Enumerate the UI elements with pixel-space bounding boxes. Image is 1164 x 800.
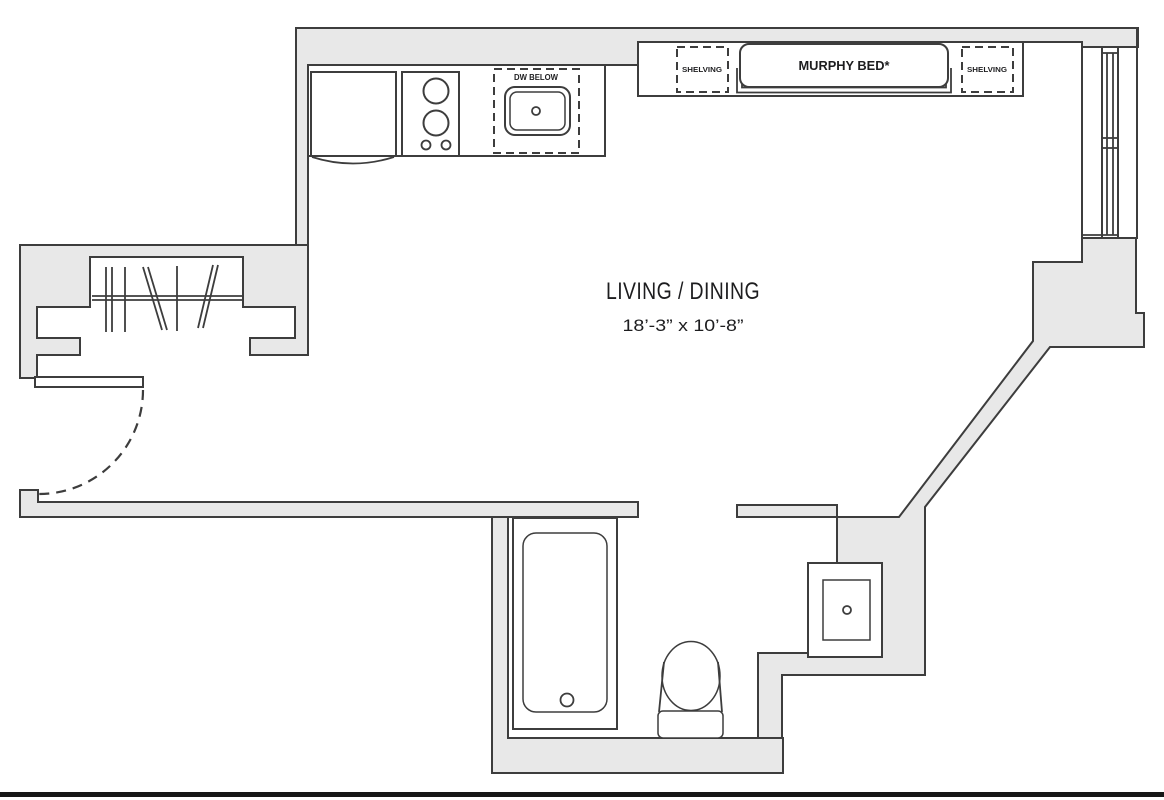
wall-right-angled-mass xyxy=(758,238,1144,740)
shelving-left-label: SHELVING xyxy=(682,67,723,74)
bottom-border-line xyxy=(0,792,1164,797)
kitchen: DW BELOW xyxy=(308,65,605,164)
cooktop xyxy=(402,72,459,156)
wall-bottom-left xyxy=(20,490,638,517)
kitchen-sink-basin xyxy=(510,92,565,130)
hanger-line xyxy=(143,267,162,330)
toilet xyxy=(658,642,723,739)
toilet-bowl xyxy=(662,642,720,711)
bathtub xyxy=(513,518,617,729)
entry-door-leaf-wall xyxy=(35,377,143,387)
murphy-bed: MURPHY BED* xyxy=(737,44,951,93)
closet-hangers xyxy=(92,265,242,332)
room-labels: LIVING / DINING 18’-3” x 10’-8” xyxy=(606,278,760,335)
bathroom xyxy=(513,518,882,738)
wall-bath-segment xyxy=(737,505,837,517)
floor-plan: DW BELOW SHELVING MURPHY BED* SHELVING xyxy=(0,0,1164,800)
dishwasher-label: DW BELOW xyxy=(514,73,558,82)
wall-closet-block xyxy=(20,245,308,378)
refrigerator xyxy=(311,72,396,156)
bathtub-basin xyxy=(523,533,607,712)
murphy-bed-alcove: SHELVING MURPHY BED* SHELVING xyxy=(638,42,1023,96)
window-frame xyxy=(1102,47,1118,238)
entry-door-arc xyxy=(39,390,143,494)
murphy-bed-label: MURPHY BED* xyxy=(799,59,890,73)
vanity-sink xyxy=(808,563,882,657)
refrigerator-door-edge xyxy=(312,157,394,164)
shelving-right-label: SHELVING xyxy=(967,67,1008,74)
toilet-tank xyxy=(658,711,723,738)
vanity-basin xyxy=(823,580,870,640)
room-label: LIVING / DINING xyxy=(606,278,760,305)
closet xyxy=(92,265,242,332)
window xyxy=(1082,28,1137,239)
room-dimensions: 18’-3” x 10’-8” xyxy=(623,316,744,335)
entry-door xyxy=(35,377,143,494)
hanger-line xyxy=(148,267,167,330)
floor-plan-page: DW BELOW SHELVING MURPHY BED* SHELVING xyxy=(0,0,1164,800)
